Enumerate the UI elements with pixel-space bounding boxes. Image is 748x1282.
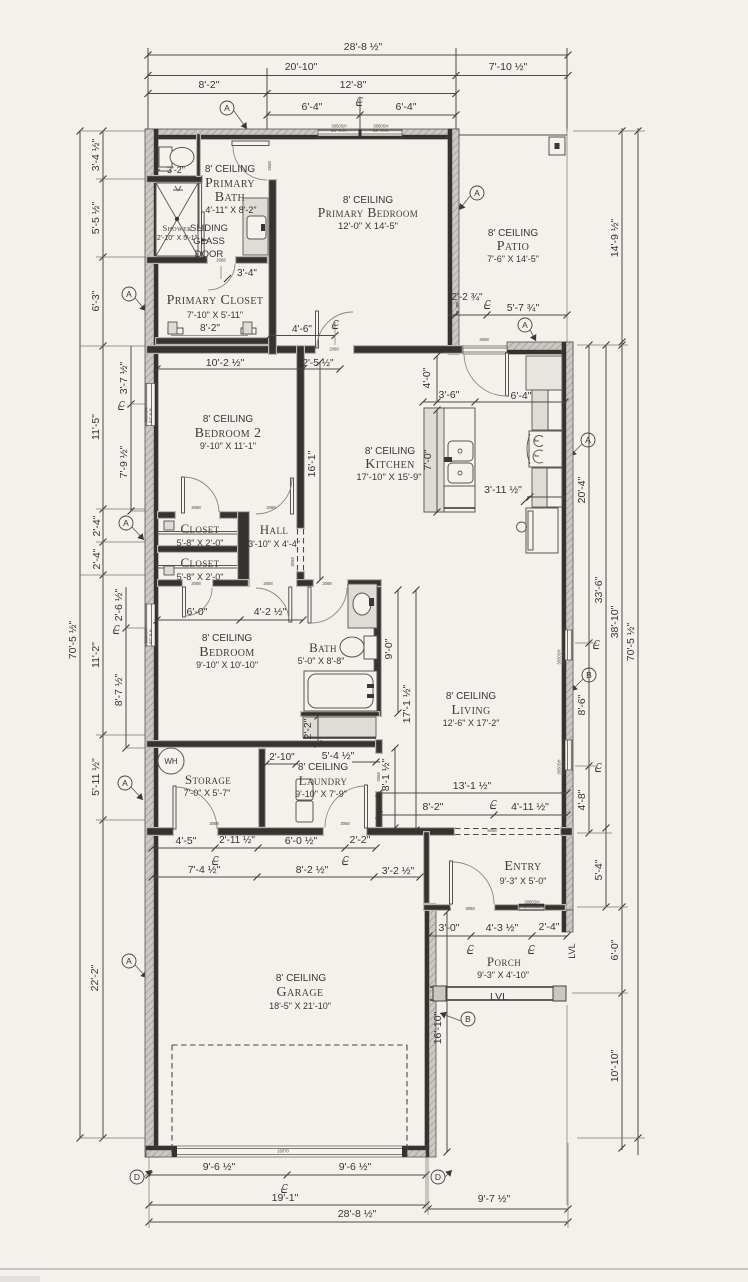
svg-text:Garage: Garage <box>277 985 324 1000</box>
svg-text:Living: Living <box>451 703 490 718</box>
svg-text:Bedroom: Bedroom <box>199 645 254 660</box>
svg-text:C: C <box>485 298 492 308</box>
svg-text:16'-10": 16'-10" <box>432 1011 444 1044</box>
svg-text:2'-10" X 5'-1": 2'-10" X 5'-1" <box>157 235 198 242</box>
svg-text:70'-5 ½": 70'-5 ½" <box>67 621 79 660</box>
svg-text:B: B <box>586 670 592 680</box>
svg-text:3'-10" X 4'-4": 3'-10" X 4'-4" <box>248 539 300 549</box>
svg-text:8'-2": 8'-2" <box>199 79 220 91</box>
svg-text:3068: 3068 <box>465 906 475 911</box>
svg-text:Primary Closet: Primary Closet <box>167 293 264 308</box>
svg-text:C: C <box>491 798 498 808</box>
svg-text:7'-4 ½": 7'-4 ½" <box>188 864 221 876</box>
svg-text:17'-10" X 15'-9": 17'-10" X 15'-9" <box>356 472 421 483</box>
svg-text:8'-2": 8'-2" <box>423 801 444 813</box>
svg-text:16070: 16070 <box>277 1149 289 1154</box>
svg-text:6'-4": 6'-4" <box>302 101 323 113</box>
svg-text:3'-4 ½": 3'-4 ½" <box>90 138 102 171</box>
svg-text:8'-7 ½": 8'-7 ½" <box>113 673 125 706</box>
svg-text:8' CEILING: 8' CEILING <box>365 446 415 457</box>
svg-text:28'-8 ½": 28'-8 ½" <box>344 41 383 53</box>
svg-text:8' CEILING: 8' CEILING <box>203 414 253 425</box>
svg-text:Bedroom 2: Bedroom 2 <box>195 426 262 441</box>
svg-text:A: A <box>123 518 129 528</box>
svg-text:7'-0": 7'-0" <box>422 449 434 470</box>
svg-text:2'-2": 2'-2" <box>302 718 314 739</box>
svg-text:3050SH84" H.H.: 3050SH84" H.H. <box>331 124 347 133</box>
svg-text:3050SH84" H.H.: 3050SH84" H.H. <box>557 759 566 775</box>
svg-text:A: A <box>122 778 128 788</box>
svg-text:10'-10": 10'-10" <box>609 1049 621 1082</box>
svg-text:Hall: Hall <box>260 522 288 537</box>
svg-text:4'-0": 4'-0" <box>421 367 433 388</box>
svg-text:3'-7 ½": 3'-7 ½" <box>118 361 130 394</box>
svg-text:C: C <box>343 854 350 864</box>
svg-text:7'-0" X 5'-7": 7'-0" X 5'-7" <box>184 788 231 798</box>
svg-text:2'-4": 2'-4" <box>91 515 103 536</box>
svg-text:20'-4": 20'-4" <box>576 476 588 503</box>
svg-text:3'-2": 3'-2" <box>167 165 185 175</box>
svg-text:LVL: LVL <box>490 991 508 1003</box>
svg-text:17'-1 ½": 17'-1 ½" <box>401 685 413 724</box>
svg-text:5'-8" X 2'-0": 5'-8" X 2'-0" <box>177 572 224 582</box>
svg-text:5'-4": 5'-4" <box>593 859 605 880</box>
svg-text:Bath: Bath <box>215 190 245 205</box>
svg-text:7'-6" X 14'-5": 7'-6" X 14'-5" <box>487 254 539 264</box>
svg-text:A: A <box>522 320 528 330</box>
svg-text:4'-6": 4'-6" <box>292 324 312 335</box>
svg-text:2'-11 ½": 2'-11 ½" <box>219 835 255 846</box>
svg-text:4'-3 ½": 4'-3 ½" <box>486 922 519 934</box>
svg-text:Closet: Closet <box>180 555 219 570</box>
svg-text:2'-4": 2'-4" <box>539 921 560 933</box>
svg-text:6'-3": 6'-3" <box>90 290 102 311</box>
svg-text:Shower: Shower <box>162 223 191 233</box>
svg-text:11'-5": 11'-5" <box>90 414 102 440</box>
svg-text:2068: 2068 <box>263 581 273 586</box>
svg-text:5'-11 ½": 5'-11 ½" <box>90 758 102 796</box>
svg-text:3068: 3068 <box>340 821 350 826</box>
svg-text:9'-10" X 10'-10": 9'-10" X 10'-10" <box>196 660 258 670</box>
svg-text:5'-0" X 8'-8": 5'-0" X 8'-8" <box>298 656 345 666</box>
svg-text:70'-5 ½": 70'-5 ½" <box>625 623 637 662</box>
svg-text:4'-5": 4'-5" <box>176 835 197 847</box>
svg-text:5'-8" X 2'-0": 5'-8" X 2'-0" <box>177 538 224 548</box>
svg-text:C: C <box>282 1182 289 1192</box>
svg-text:22'-2": 22'-2" <box>89 964 101 991</box>
svg-text:C: C <box>114 623 121 633</box>
svg-text:8' CEILING: 8' CEILING <box>298 762 348 773</box>
svg-text:Laundry: Laundry <box>299 773 348 788</box>
svg-text:8' CEILING: 8' CEILING <box>276 973 326 984</box>
svg-text:3068: 3068 <box>290 557 295 567</box>
svg-text:3'-2 ½": 3'-2 ½" <box>382 865 415 877</box>
svg-text:3050SH84" H.H.: 3050SH84" H.H. <box>524 900 540 909</box>
svg-text:D: D <box>435 1172 441 1182</box>
svg-text:LVL: LVL <box>567 943 577 958</box>
svg-text:D: D <box>134 1172 140 1182</box>
svg-text:4'-11" X 8'-2": 4'-11" X 8'-2" <box>205 205 256 215</box>
svg-text:7'-10 ½": 7'-10 ½" <box>489 61 528 73</box>
svg-text:9'-0": 9'-0" <box>383 638 395 659</box>
svg-text:GLASS: GLASS <box>193 236 225 247</box>
svg-text:5068: 5068 <box>487 828 497 833</box>
svg-text:WH: WH <box>164 757 178 766</box>
svg-text:8'-2": 8'-2" <box>200 323 220 334</box>
svg-text:4'-2 ½": 4'-2 ½" <box>254 606 287 618</box>
svg-text:19'-1": 19'-1" <box>272 1192 299 1204</box>
svg-text:9'-3" X 4'-10": 9'-3" X 4'-10" <box>477 970 529 980</box>
svg-text:8'-6": 8'-6" <box>576 694 588 715</box>
svg-text:2'-2 ¾": 2'-2 ¾" <box>451 292 482 303</box>
svg-text:4'-11 ½": 4'-11 ½" <box>511 801 549 813</box>
svg-text:3050SH84" H.H.: 3050SH84" H.H. <box>373 124 389 133</box>
svg-text:12'-6" X 17'-2": 12'-6" X 17'-2" <box>443 718 500 728</box>
svg-text:38'-10": 38'-10" <box>609 605 621 638</box>
svg-text:9'-7 ½": 9'-7 ½" <box>478 1193 511 1205</box>
svg-text:20'-10": 20'-10" <box>285 61 318 73</box>
svg-text:2'-10": 2'-10" <box>269 752 295 763</box>
svg-text:Closet: Closet <box>180 521 219 536</box>
svg-text:8' CEILING: 8' CEILING <box>488 228 538 239</box>
svg-text:2668: 2668 <box>267 161 272 171</box>
svg-text:C: C <box>333 318 340 328</box>
svg-text:11'-2": 11'-2" <box>90 642 102 668</box>
svg-text:3'-0": 3'-0" <box>439 922 460 934</box>
svg-text:C: C <box>119 399 126 409</box>
svg-text:7'-9 ½": 7'-9 ½" <box>118 445 130 478</box>
svg-text:9'-10" X 11'-1": 9'-10" X 11'-1" <box>200 441 256 451</box>
svg-text:8'-2 ½": 8'-2 ½" <box>296 864 329 876</box>
svg-text:10'-2 ½": 10'-2 ½" <box>206 357 245 369</box>
svg-text:3050SH84" H.H.: 3050SH84" H.H. <box>144 407 153 423</box>
svg-text:9'-10" X 7'-9": 9'-10" X 7'-9" <box>295 789 347 799</box>
svg-text:3068: 3068 <box>209 821 219 826</box>
svg-text:B: B <box>465 1014 471 1024</box>
svg-text:Primary: Primary <box>205 176 255 191</box>
svg-text:3'-11 ½": 3'-11 ½" <box>484 484 522 496</box>
svg-text:3050SH84" H.H.: 3050SH84" H.H. <box>144 628 153 644</box>
svg-text:9'-6 ½": 9'-6 ½" <box>203 1161 236 1173</box>
svg-text:8' CEILING: 8' CEILING <box>202 633 252 644</box>
svg-text:5'-4 ½": 5'-4 ½" <box>322 750 355 762</box>
svg-text:28'-8 ½": 28'-8 ½" <box>338 1208 377 1220</box>
svg-text:3'-4": 3'-4" <box>237 268 257 279</box>
svg-text:2'-4": 2'-4" <box>91 548 103 569</box>
svg-text:9'-3" X 5'-0": 9'-3" X 5'-0" <box>500 876 547 886</box>
svg-text:Storage: Storage <box>185 772 231 787</box>
svg-text:2068: 2068 <box>266 505 276 510</box>
svg-text:6'-0": 6'-0" <box>609 939 621 960</box>
svg-text:3'-6": 3'-6" <box>439 389 460 401</box>
svg-text:C: C <box>468 943 475 953</box>
svg-text:6'-4": 6'-4" <box>396 101 417 113</box>
svg-text:2'-2": 2'-2" <box>350 834 371 846</box>
svg-text:6'-0 ½": 6'-0 ½" <box>285 835 318 847</box>
svg-text:12'-0" X 14'-5": 12'-0" X 14'-5" <box>338 221 398 232</box>
svg-text:33'-6": 33'-6" <box>593 576 605 603</box>
svg-text:DOOR: DOOR <box>195 249 224 260</box>
svg-text:8' CEILING: 8' CEILING <box>446 691 496 702</box>
svg-text:Kitchen: Kitchen <box>365 457 415 472</box>
svg-text:13'-1 ½": 13'-1 ½" <box>453 780 492 792</box>
svg-text:Entry: Entry <box>504 859 541 874</box>
svg-text:2068: 2068 <box>322 581 332 586</box>
svg-text:5'-7 ¾": 5'-7 ¾" <box>507 302 540 314</box>
svg-text:2'-6 ½": 2'-6 ½" <box>113 588 125 621</box>
svg-text:5'-5 ½": 5'-5 ½" <box>90 201 102 234</box>
svg-text:2068: 2068 <box>329 347 339 352</box>
svg-text:8' CEILING: 8' CEILING <box>205 164 255 175</box>
svg-text:3068: 3068 <box>479 337 489 342</box>
svg-text:6'-0": 6'-0" <box>187 606 208 618</box>
svg-text:Porch: Porch <box>487 954 521 969</box>
svg-text:12'-8": 12'-8" <box>340 79 367 91</box>
svg-text:18'-5" X 21'-10": 18'-5" X 21'-10" <box>269 1001 331 1011</box>
svg-text:16'-1": 16'-1" <box>306 450 318 477</box>
svg-text:Primary Bedroom: Primary Bedroom <box>318 205 418 220</box>
svg-text:A: A <box>474 188 480 198</box>
svg-text:7'-10" X 5'-11": 7'-10" X 5'-11" <box>187 310 243 320</box>
svg-text:9'-6 ½": 9'-6 ½" <box>339 1161 372 1173</box>
svg-text:Patio: Patio <box>497 239 530 254</box>
svg-text:14'-9 ½": 14'-9 ½" <box>609 219 621 258</box>
svg-text:A: A <box>126 289 132 299</box>
svg-text:A: A <box>585 435 591 445</box>
svg-text:SLIDING: SLIDING <box>190 223 228 234</box>
svg-text:4'-8": 4'-8" <box>576 789 588 810</box>
svg-text:A: A <box>224 103 230 113</box>
svg-text:Bath: Bath <box>309 640 337 655</box>
svg-text:8'-1 ½": 8'-1 ½" <box>380 758 392 791</box>
svg-text:3050SH84" H.H.: 3050SH84" H.H. <box>557 649 566 665</box>
svg-text:6'-4": 6'-4" <box>511 390 532 402</box>
svg-text:C: C <box>213 854 220 864</box>
svg-text:2068: 2068 <box>191 505 201 510</box>
svg-text:C: C <box>529 943 536 953</box>
svg-text:A: A <box>126 956 132 966</box>
